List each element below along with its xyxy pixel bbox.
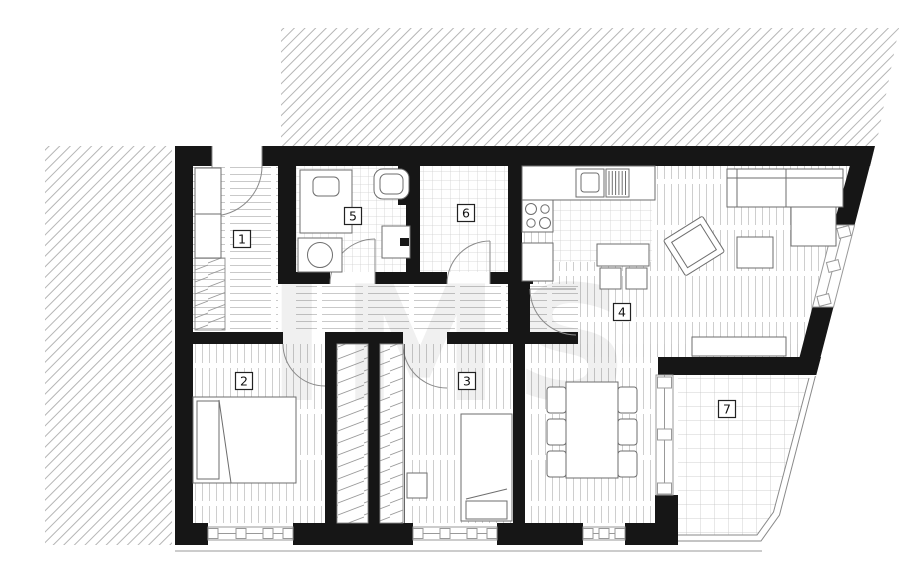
wall-left (175, 146, 193, 545)
svg-text:3: 3 (463, 374, 471, 389)
dining-chair-r2 (618, 419, 637, 445)
wall-bottom-1 (293, 523, 413, 545)
dining-chair-l1 (547, 387, 566, 413)
wall-corridor-bottom-1 (193, 332, 283, 344)
wall-bottom-pier-left (175, 523, 208, 545)
svg-text:6: 6 (462, 206, 470, 221)
wall-bottom-3 (625, 523, 678, 545)
exterior-hatch-left (45, 146, 172, 545)
bath-tap-icon (400, 238, 409, 246)
hall-wardrobe-top (195, 168, 221, 214)
closet-bedroom3 (380, 344, 403, 523)
room-label-4: 4 (614, 304, 631, 321)
room-label-3: 3 (459, 373, 476, 390)
svg-text:7: 7 (723, 402, 731, 417)
coffee-table (737, 237, 773, 268)
svg-text:2: 2 (240, 374, 248, 389)
floor-plan-page: IMS (0, 0, 919, 572)
wall-kitchen-door-jamb (508, 272, 530, 338)
closet-bedroom2 (337, 344, 368, 523)
kitchen-chair-2 (626, 268, 647, 289)
wall-balcony-pier (655, 495, 678, 523)
wall-top (262, 146, 875, 166)
washing-machine-drum (308, 243, 333, 268)
floor-plan: IMS (0, 0, 919, 572)
window-dining (583, 527, 625, 540)
wall-closet-mid (368, 344, 380, 523)
wall-hall-bath (278, 166, 296, 284)
room-label-7: 7 (719, 401, 736, 418)
wall-bedroom3-dining (513, 344, 525, 523)
wall-corridor-bottom-3 (447, 332, 578, 344)
bath-sink-basin (380, 174, 403, 194)
wall-corridor-top-1 (278, 272, 330, 284)
wall-corridor-bottom-2 (325, 332, 403, 344)
room-label-6: 6 (458, 205, 475, 222)
kitchen-chair-1 (600, 268, 621, 289)
nightstand (407, 473, 427, 498)
room-label-5: 5 (345, 208, 362, 225)
sofa-chaise (791, 207, 836, 246)
dining-chair-r3 (618, 451, 637, 477)
burner-4 (540, 218, 551, 229)
hall-wardrobe-bottom (195, 214, 221, 258)
burner-3 (527, 219, 535, 227)
burner-2 (541, 205, 549, 213)
kitchen-sink-basin (581, 173, 599, 192)
shower-drain (313, 177, 339, 196)
dining-chair-l3 (547, 451, 566, 477)
window-balcony-door (656, 375, 673, 495)
room-label-2: 2 (236, 373, 253, 390)
bedroom2-furniture (193, 397, 296, 483)
bed-single-blanket (466, 501, 507, 519)
closet-hall (195, 258, 225, 330)
burner-1 (526, 204, 537, 215)
tv-bench (692, 337, 786, 356)
wall-room6-kitchen (508, 166, 522, 272)
sofa (727, 169, 843, 207)
room-label-1: 1 (234, 231, 251, 248)
window-bedroom2 (208, 527, 293, 540)
dining-chair-l2 (547, 419, 566, 445)
wall-bedroom2-closet (325, 344, 337, 523)
bed-double-pillow (197, 401, 219, 479)
dining-set (547, 382, 637, 478)
window-bedroom3 (413, 527, 497, 540)
svg-text:4: 4 (618, 305, 626, 320)
wall-bottom-2 (497, 523, 583, 545)
dining-chair-r1 (618, 387, 637, 413)
svg-text:5: 5 (349, 209, 357, 224)
balcony-floor (678, 375, 809, 535)
exterior-hatch-top (281, 28, 899, 146)
kitchen-counter-low (522, 243, 553, 281)
svg-text:1: 1 (238, 232, 246, 247)
kitchen-table (597, 244, 649, 266)
dining-table (566, 382, 618, 478)
